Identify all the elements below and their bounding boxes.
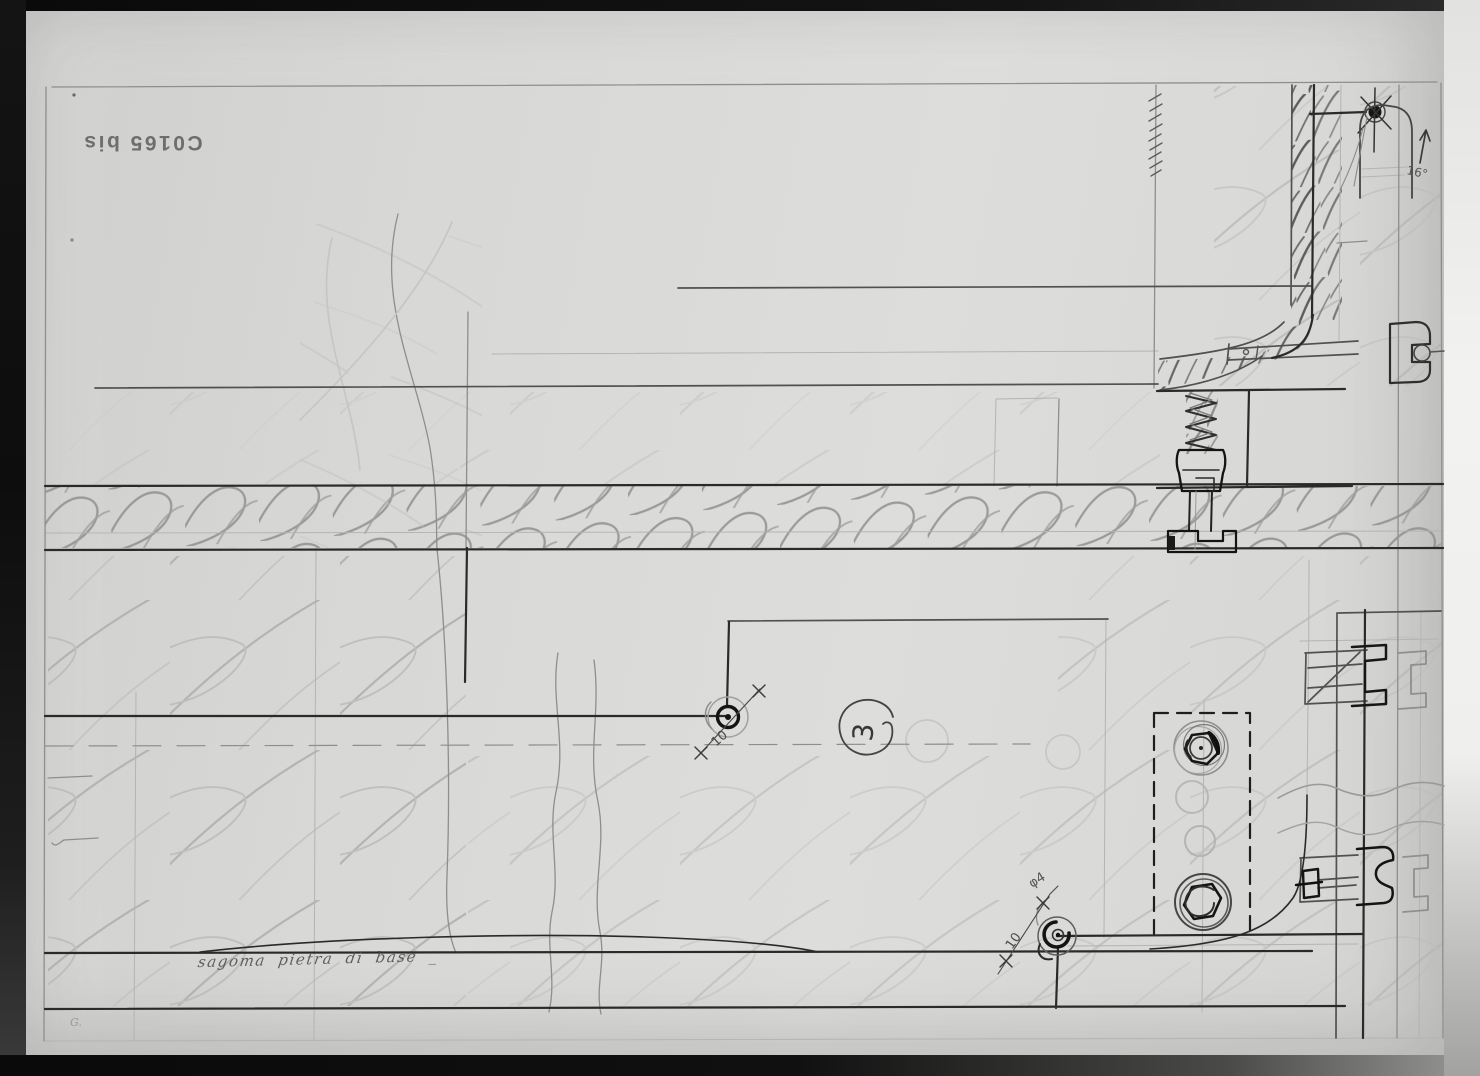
- detail-callout-number: 3: [846, 722, 881, 743]
- pencil-drawing: 16°: [0, 0, 1480, 1076]
- pencil-shading: [45, 85, 1442, 1006]
- pivot-dim-left-label: 10: [709, 728, 731, 750]
- detail-callout: 3: [839, 700, 893, 755]
- scanned-photo: 16°: [0, 0, 1480, 1076]
- pivot-pin-left: 10: [695, 685, 765, 759]
- corner-mark: G.: [70, 1016, 82, 1029]
- archive-stamp: C0165 bis: [82, 130, 203, 154]
